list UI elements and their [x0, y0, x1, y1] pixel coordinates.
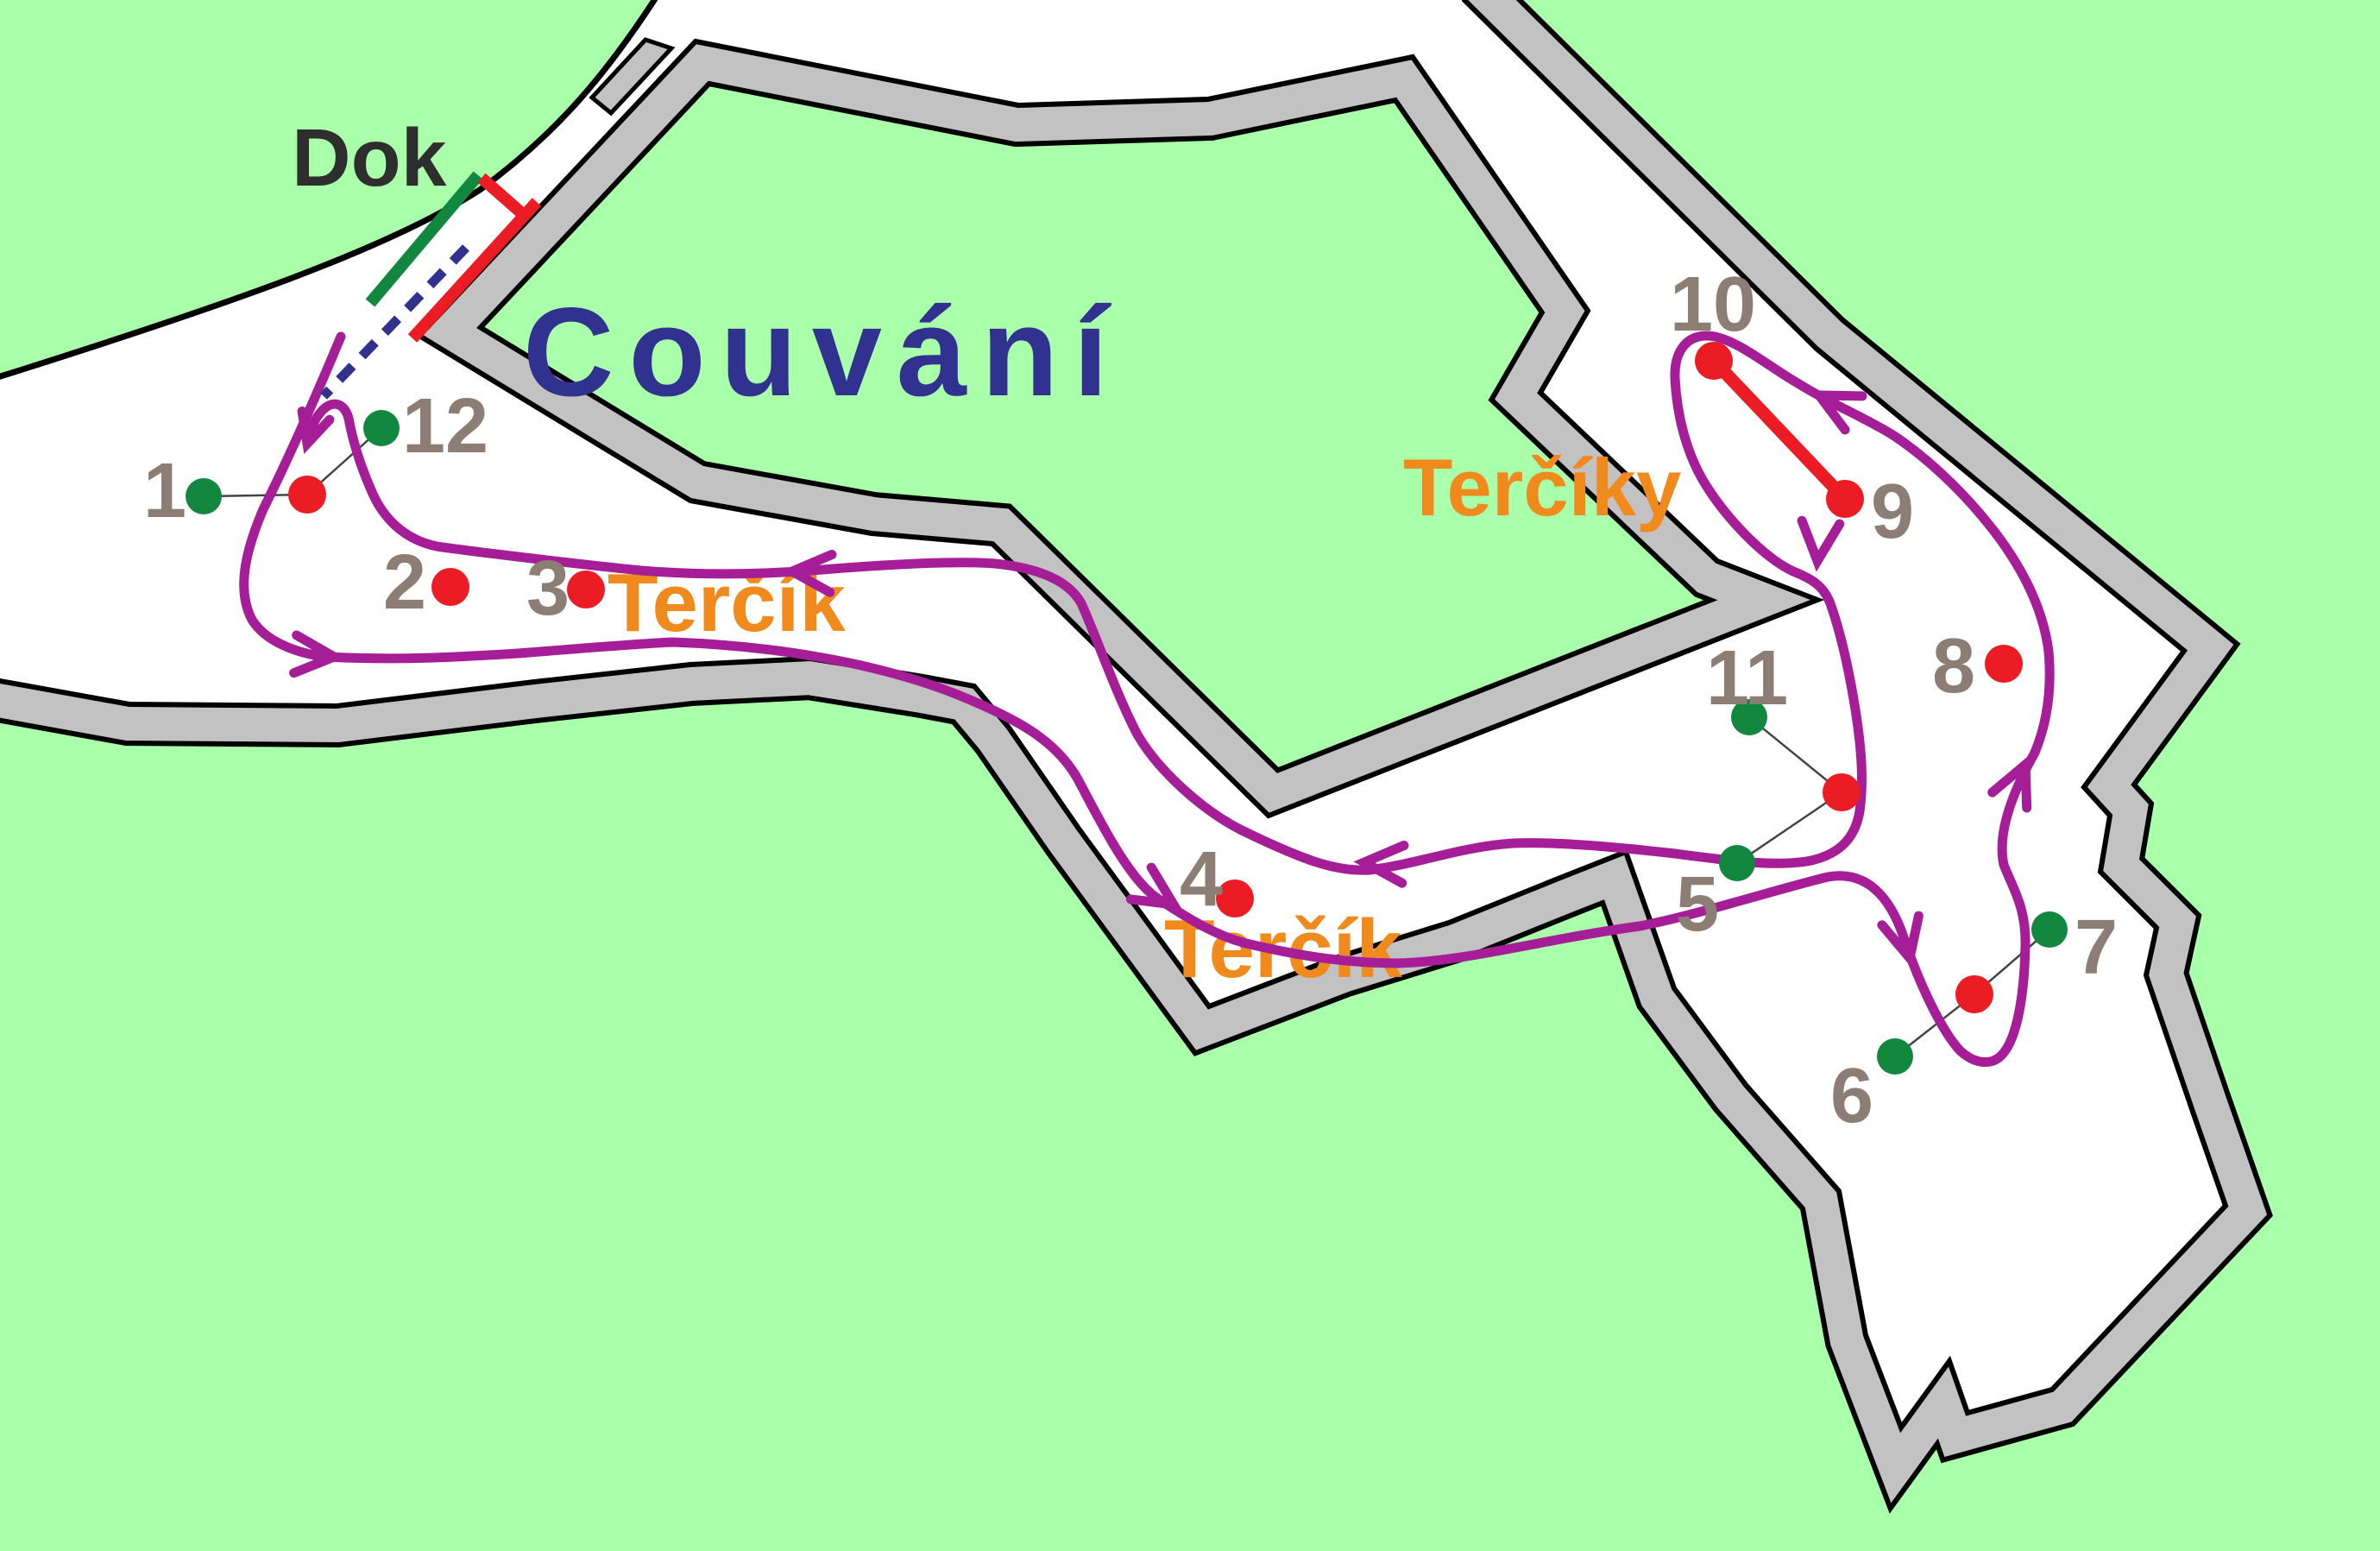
svg-text:1: 1 — [143, 448, 186, 534]
svg-text:11: 11 — [1706, 635, 1788, 722]
svg-text:9: 9 — [1871, 469, 1914, 555]
svg-text:7: 7 — [2075, 905, 2118, 991]
svg-text:6: 6 — [1830, 1053, 1873, 1139]
svg-text:Couvání: Couvání — [523, 281, 1123, 422]
svg-text:Terčíky: Terčíky — [1403, 442, 1681, 533]
svg-text:5: 5 — [1676, 861, 1719, 948]
svg-text:4: 4 — [1180, 836, 1223, 923]
svg-text:8: 8 — [1932, 623, 1975, 709]
svg-text:Dok: Dok — [292, 112, 447, 204]
svg-text:2: 2 — [383, 539, 426, 626]
svg-text:10: 10 — [1670, 262, 1756, 348]
svg-text:12: 12 — [402, 383, 488, 470]
svg-text:3: 3 — [526, 545, 570, 632]
